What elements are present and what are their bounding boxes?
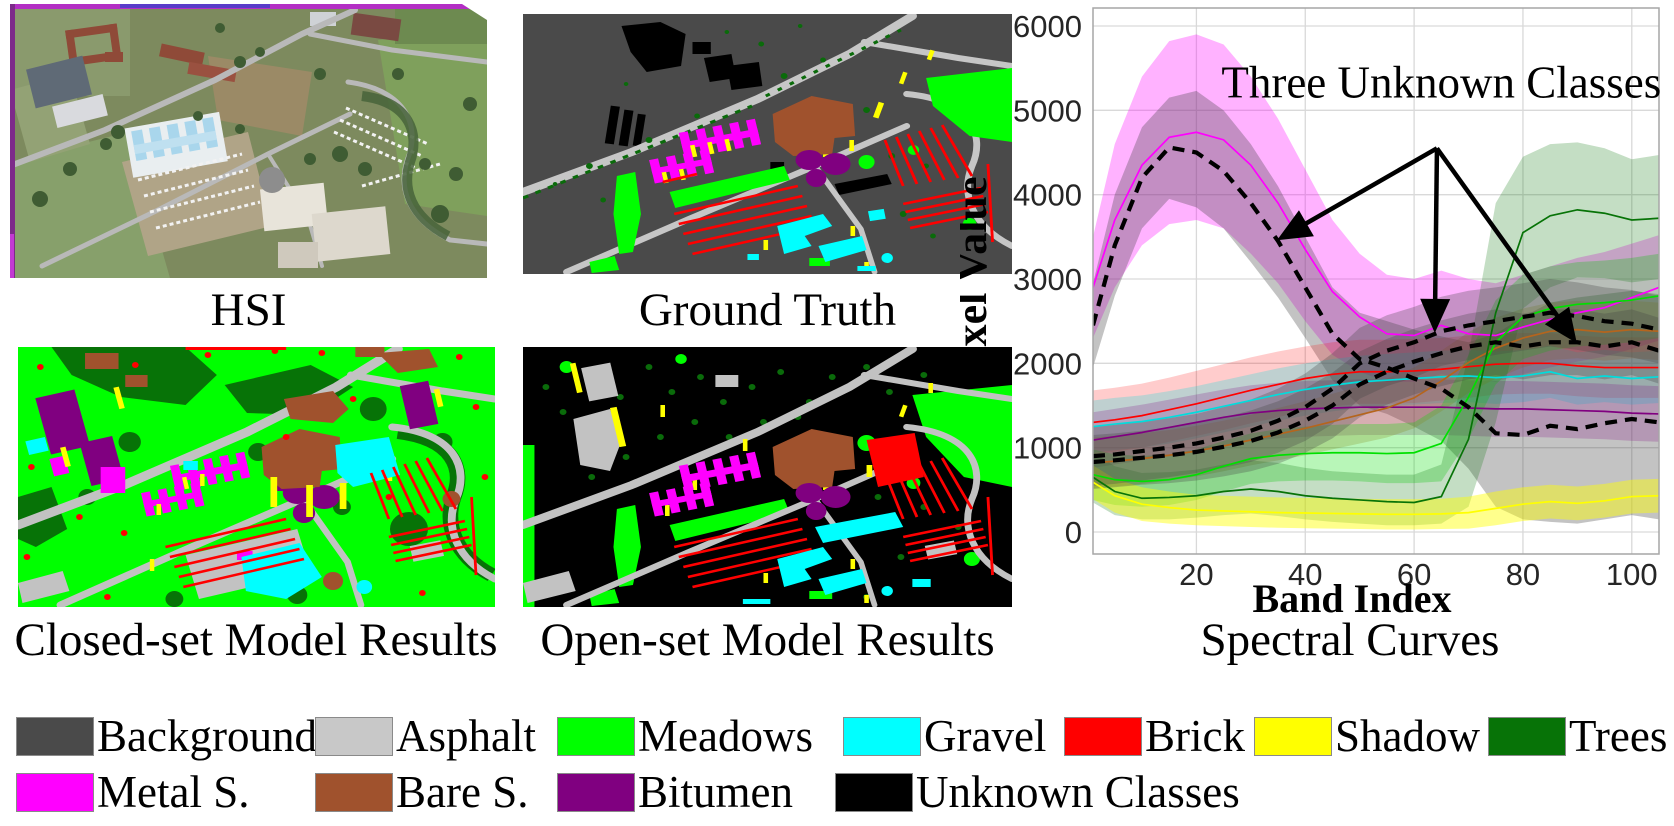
- svg-text:3000: 3000: [1013, 262, 1082, 297]
- legend-label: Brick: [1145, 714, 1245, 759]
- legend-item-trees: Trees: [1488, 716, 1667, 756]
- legend-swatch: [557, 717, 635, 756]
- legend-swatch: [1488, 717, 1566, 756]
- closed-set-graphic: [18, 347, 495, 607]
- caption-ground-truth: Ground Truth: [523, 284, 1012, 336]
- caption-hsi: HSI: [10, 284, 487, 336]
- legend-swatch: [1254, 717, 1332, 756]
- caption-closed-set: Closed-set Model Results: [0, 614, 512, 666]
- legend-label: Unknown Classes: [916, 770, 1240, 815]
- svg-text:100: 100: [1606, 557, 1658, 592]
- legend-label: Shadow: [1335, 714, 1480, 759]
- legend-swatch: [315, 773, 393, 812]
- svg-text:4000: 4000: [1013, 178, 1082, 213]
- legend-swatch: [835, 773, 913, 812]
- legend-label: Gravel: [924, 714, 1046, 759]
- legend-item-asphalt: Asphalt: [315, 716, 536, 756]
- svg-text:20: 20: [1179, 557, 1213, 592]
- svg-text:80: 80: [1506, 557, 1540, 592]
- legend-item-meadows: Meadows: [557, 716, 813, 756]
- legend-item-gravel: Gravel: [843, 716, 1046, 756]
- legend-item-bitumen: Bitumen: [557, 772, 793, 812]
- legend-item-brick: Brick: [1064, 716, 1245, 756]
- svg-text:Band Index: Band Index: [1253, 576, 1452, 621]
- svg-text:1000: 1000: [1013, 431, 1082, 466]
- legend-swatch: [1064, 717, 1142, 756]
- hsi-aerial-graphic: [10, 4, 487, 278]
- legend-label: Asphalt: [396, 714, 536, 759]
- legend-label: Metal S.: [97, 770, 250, 815]
- svg-text:Pixel Value: Pixel Value: [960, 176, 996, 385]
- svg-text:Three Unknown Classes: Three Unknown Classes: [1221, 58, 1661, 108]
- legend-label: Background: [97, 714, 317, 759]
- legend-label: Bitumen: [638, 770, 793, 815]
- caption-open-set: Open-set Model Results: [523, 614, 1012, 666]
- svg-text:0: 0: [1065, 515, 1082, 550]
- legend-item-background: Background: [16, 716, 317, 756]
- legend-item-unknown-classes: Unknown Classes: [835, 772, 1240, 812]
- closed-set-image: [18, 347, 495, 607]
- legend-label: Trees: [1569, 714, 1667, 759]
- legend-swatch: [16, 773, 94, 812]
- legend-item-metal-s: Metal S.: [16, 772, 250, 812]
- figure-root: HSI Ground Truth Closed-set Model Result…: [0, 0, 1674, 826]
- legend-item-shadow: Shadow: [1254, 716, 1480, 756]
- spectral-curves-chart: 010002000300040005000600020406080100Pixe…: [960, 0, 1674, 665]
- ground-truth-graphic: [523, 14, 1012, 274]
- legend-swatch: [315, 717, 393, 756]
- legend-label: Bare S.: [396, 770, 528, 815]
- svg-text:6000: 6000: [1013, 9, 1082, 44]
- legend-swatch: [843, 717, 921, 756]
- legend-item-bare-s: Bare S.: [315, 772, 528, 812]
- hsi-image: [10, 4, 487, 278]
- open-set-image: [523, 347, 1012, 607]
- legend-swatch: [557, 773, 635, 812]
- open-set-graphic: [523, 347, 1012, 607]
- svg-text:2000: 2000: [1013, 346, 1082, 381]
- ground-truth-image: [523, 14, 1012, 274]
- svg-text:5000: 5000: [1013, 93, 1082, 128]
- legend-label: Meadows: [638, 714, 813, 759]
- legend-swatch: [16, 717, 94, 756]
